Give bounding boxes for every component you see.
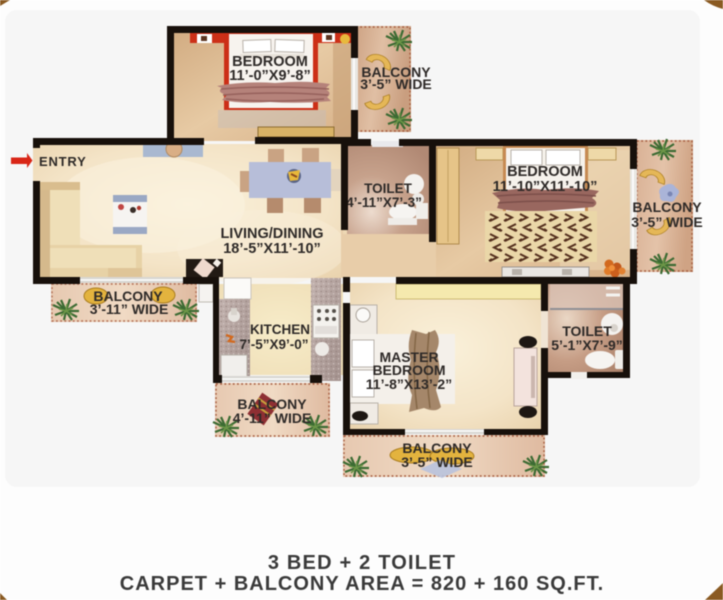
svg-text:4’-11” WIDE: 4’-11” WIDE — [233, 410, 312, 426]
svg-text:5’-1”X7’-9”: 5’-1”X7’-9” — [551, 337, 623, 353]
svg-text:3’-5” WIDE: 3’-5” WIDE — [360, 76, 432, 92]
svg-text:3’-5” WIDE: 3’-5” WIDE — [401, 454, 473, 470]
svg-text:11’-10”X11’-10”: 11’-10”X11’-10” — [493, 179, 598, 195]
svg-text:18’-5”X11’-10”: 18’-5”X11’-10” — [223, 241, 321, 257]
svg-text:LIVING/DINING: LIVING/DINING — [220, 226, 323, 242]
svg-text:7’-5”X9’-0”: 7’-5”X9’-0” — [239, 337, 308, 352]
svg-text:3 BED + 2 TOILET: 3 BED + 2 TOILET — [268, 552, 456, 574]
svg-text:11’-8”X13’-2”: 11’-8”X13’-2” — [366, 376, 452, 392]
svg-text:4’-11”X7’-3”: 4’-11”X7’-3” — [346, 195, 422, 210]
svg-text:BALCONY: BALCONY — [632, 199, 702, 215]
svg-text:BEDROOM: BEDROOM — [507, 164, 583, 180]
svg-text:ENTRY: ENTRY — [39, 154, 87, 169]
svg-text:11’-0”X9’-8”: 11’-0”X9’-8” — [229, 68, 310, 84]
svg-text:CARPET + BALCONY AREA = 820 +: CARPET + BALCONY AREA = 820 + 160 SQ.FT. — [120, 573, 604, 595]
svg-text:3’-5” WIDE: 3’-5” WIDE — [631, 214, 703, 230]
svg-text:TOILET: TOILET — [364, 181, 413, 196]
svg-text:KITCHEN: KITCHEN — [250, 322, 310, 337]
svg-text:3’-11” WIDE: 3’-11” WIDE — [90, 301, 169, 317]
